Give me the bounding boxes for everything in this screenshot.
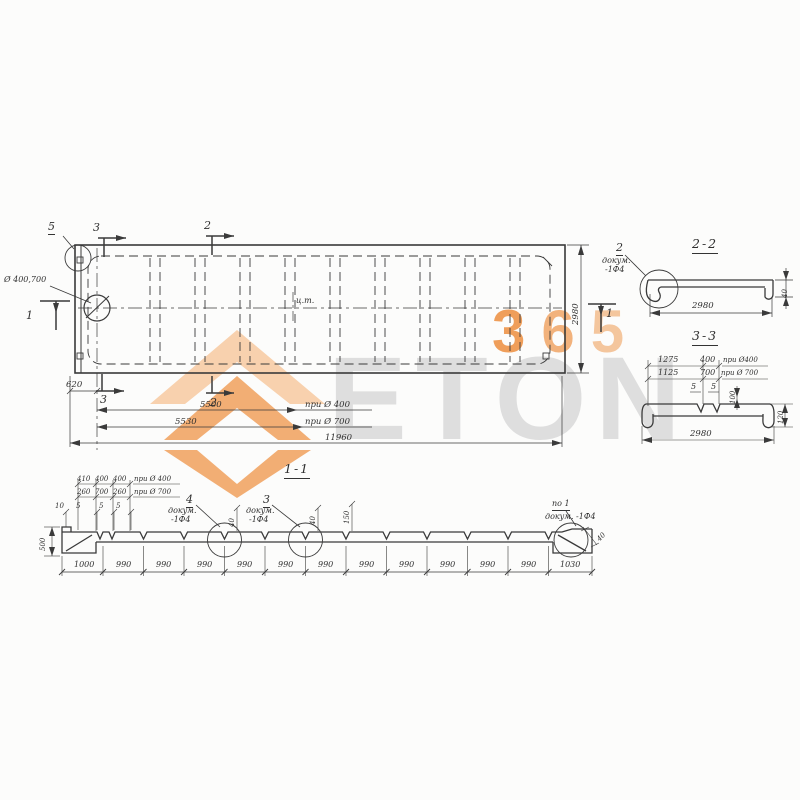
dim-5500: 5500 <box>200 401 222 410</box>
notch-dim-40a: 40 <box>229 518 236 527</box>
section-2-2-callout: 2 <box>616 242 623 256</box>
plan-callout-5: 5 <box>48 221 55 235</box>
dim-400b: 400 <box>113 476 126 483</box>
dim-120: 120 <box>778 411 785 424</box>
dim-410: 410 <box>77 476 90 483</box>
bottom-dim: 990 <box>480 561 495 569</box>
dim-5530: 5530 <box>175 418 197 427</box>
bottom-dim: 990 <box>237 561 252 569</box>
plan-marker-1-left: 1 <box>26 310 33 321</box>
section-2-2-doc-note: докум. <box>602 257 630 265</box>
note-at-d400-s33: при Ø400 <box>723 357 758 364</box>
plan-marker-1-right: 1 <box>606 308 613 319</box>
dim-260a: 260 <box>77 489 90 496</box>
dim-2980-plan: 2980 <box>572 303 581 325</box>
dim-5-right: 5 <box>711 383 716 391</box>
bottom-dim: 990 <box>359 561 374 569</box>
section-3-3-title: 3-3 <box>692 330 718 346</box>
bottom-dim: 990 <box>521 561 536 569</box>
callout-3-doc: -1Ф4 <box>249 516 269 524</box>
dim-100: 100 <box>730 391 737 404</box>
note-at-d400-s11: при Ø 400 <box>134 476 171 483</box>
drawing-sheet: ETON 365 <box>0 0 800 800</box>
dim-5b: 5 <box>99 503 103 510</box>
section-1-1-title: 1-1 <box>284 463 310 479</box>
bottom-dim: 990 <box>399 561 414 569</box>
bottom-dim: 1030 <box>560 561 580 569</box>
callout-4-doc: -1Ф4 <box>171 516 191 524</box>
hole-diameter-label: Ø 400,700 <box>4 276 46 284</box>
dim-5-left: 5 <box>691 383 696 391</box>
bottom-dim: 990 <box>156 561 171 569</box>
callout-3-doc: докум. <box>246 507 274 515</box>
centroid-label: ц.т. <box>296 297 314 305</box>
dim-flange-s22: 40 <box>782 289 789 298</box>
plan-marker-3-bottom: 3 <box>100 394 107 405</box>
note-at-d700-s33: при Ø 700 <box>721 370 758 377</box>
dim-2980-s22: 2980 <box>692 302 714 311</box>
dim-10: 10 <box>55 503 64 510</box>
notch-dim-40b: 40 <box>310 516 317 525</box>
callout-po-1: по 1 <box>552 500 570 511</box>
dim-2980-s33: 2980 <box>690 430 712 439</box>
section-2-2-title: 2-2 <box>692 238 718 254</box>
bottom-dim: 990 <box>197 561 212 569</box>
bottom-dim: 990 <box>278 561 293 569</box>
bottom-dim: 990 <box>318 561 333 569</box>
dim-5c: 5 <box>116 503 120 510</box>
plan-marker-3-top: 3 <box>93 222 100 233</box>
bottom-dim: 1000 <box>74 561 94 569</box>
note-at-d700-s11: при Ø 700 <box>134 489 171 496</box>
dim-1275: 1275 <box>658 356 678 364</box>
drawing-linework <box>0 0 800 800</box>
dim-5a: 5 <box>76 503 80 510</box>
dim-11960: 11960 <box>325 434 352 443</box>
section-2-2-doc-note: -1Ф4 <box>605 266 625 274</box>
dim-620: 620 <box>66 381 82 390</box>
plan-marker-2-top: 2 <box>204 220 211 231</box>
callout-po-1-doc: докум. -1Ф4 <box>545 513 596 521</box>
dim-500-left: 500 <box>40 538 47 551</box>
bottom-dim: 990 <box>440 561 455 569</box>
note-at-d400: при Ø 400 <box>305 401 350 410</box>
dim-700-s11: 700 <box>95 489 108 496</box>
bottom-dim: 990 <box>116 561 131 569</box>
dim-260b: 260 <box>113 489 126 496</box>
note-at-d700: при Ø 700 <box>305 418 350 427</box>
dim-700: 700 <box>700 369 715 377</box>
callout-4-doc: докум. <box>168 507 196 515</box>
dim-1125: 1125 <box>658 369 678 377</box>
notch-dim-150: 150 <box>344 511 351 524</box>
dim-400: 400 <box>700 356 715 364</box>
dim-400a: 400 <box>95 476 108 483</box>
